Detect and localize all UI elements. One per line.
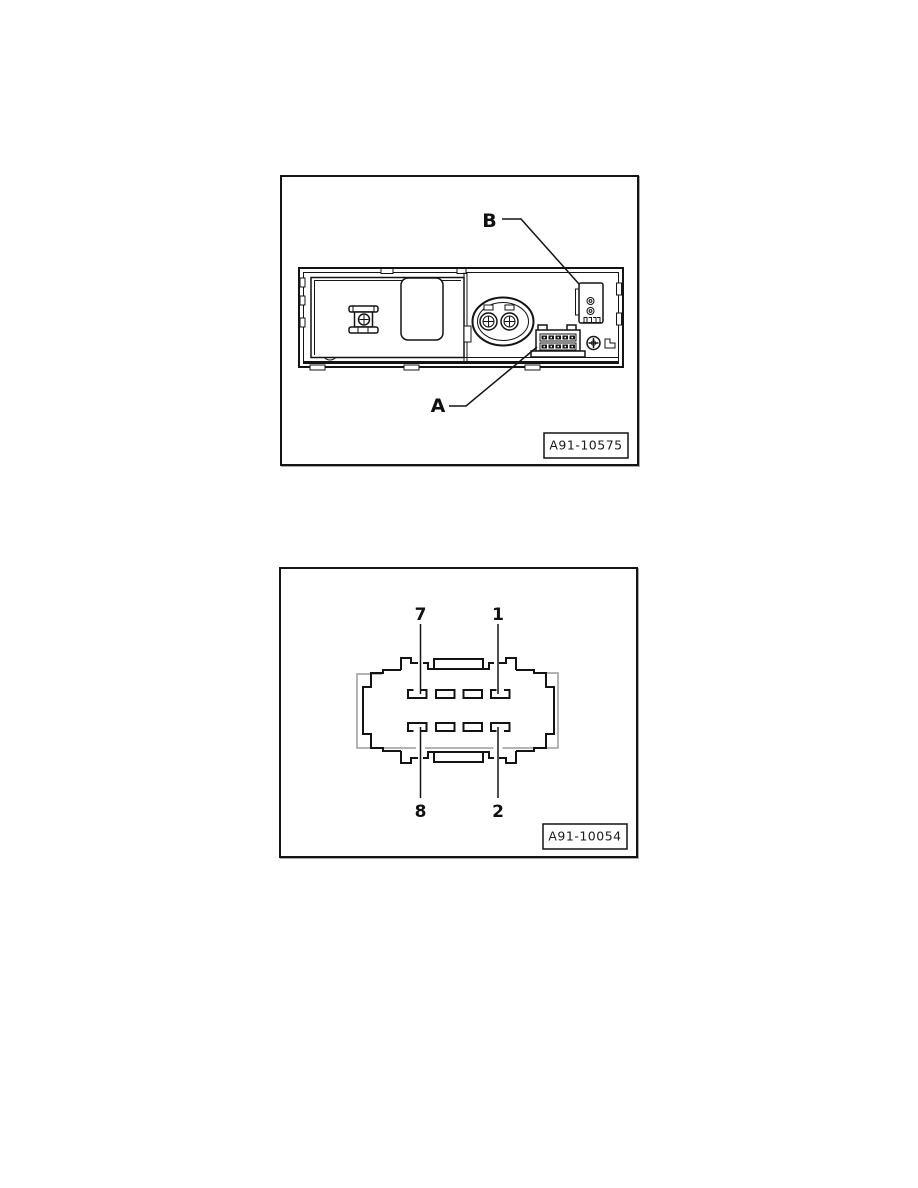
- housing-bottom-plateau: [434, 752, 483, 762]
- connector-pinout-drawing: 7 1 8 2 A91-10054: [279, 567, 638, 857]
- figure-connector-pinout: 7 1 8 2 A91-10054: [279, 567, 638, 858]
- pin-3: [464, 723, 483, 731]
- pin-7: [408, 690, 427, 698]
- left-edge-tab-1: [300, 278, 305, 287]
- housing-left-side: [363, 670, 401, 751]
- antenna-notch-left: [484, 305, 493, 310]
- pin-2: [491, 723, 510, 731]
- callout-label-b: B: [482, 210, 496, 232]
- antenna-connector: [473, 298, 534, 346]
- left-edge-tab-2: [300, 296, 305, 305]
- foot-middle: [404, 365, 419, 370]
- antenna-notch-right: [505, 305, 514, 310]
- callout-label-a: A: [431, 395, 446, 417]
- foot-left: [310, 365, 325, 370]
- mounting-screw: [587, 337, 600, 350]
- head-unit-rear-drawing: B A A91-10575: [280, 175, 639, 466]
- pin-4: [436, 723, 455, 731]
- housing-outer-contour: [357, 673, 558, 748]
- bottom-band: [303, 361, 619, 364]
- top-tab-right: [457, 269, 466, 274]
- pin-5: [464, 690, 483, 698]
- top-tab-left: [381, 269, 393, 274]
- housing-right-side: [516, 670, 554, 751]
- figure-id-text: A91-10575: [549, 438, 622, 453]
- figure-id-text: A91-10054: [548, 829, 621, 844]
- foot-right: [525, 365, 540, 370]
- pin-row-top: [408, 690, 510, 698]
- connector-a: [531, 325, 585, 357]
- pin-label-7: 7: [415, 605, 427, 625]
- connector-a-base: [531, 351, 585, 357]
- pin-label-8: 8: [415, 802, 427, 822]
- connector-b: [576, 283, 604, 323]
- pin-label-2: 2: [492, 802, 504, 822]
- pin-row-bottom: [408, 723, 510, 731]
- pin-8: [408, 723, 427, 731]
- figure-head-unit-rear: B A A91-10575: [280, 175, 639, 466]
- figure-id-plate: A91-10054: [543, 824, 627, 849]
- pin-label-1: 1: [492, 605, 504, 625]
- spool-bottom-flange: [349, 327, 378, 333]
- left-edge-tab-3: [300, 318, 305, 327]
- figure-id-plate: A91-10575: [544, 433, 628, 458]
- right-edge-tab-1: [617, 283, 622, 295]
- panel-cutout: [401, 278, 443, 340]
- right-edge-tab-2: [617, 313, 622, 325]
- divider-tab: [464, 326, 471, 342]
- housing-top-plateau: [434, 659, 483, 669]
- pin-6: [436, 690, 455, 698]
- pin-1: [491, 690, 510, 698]
